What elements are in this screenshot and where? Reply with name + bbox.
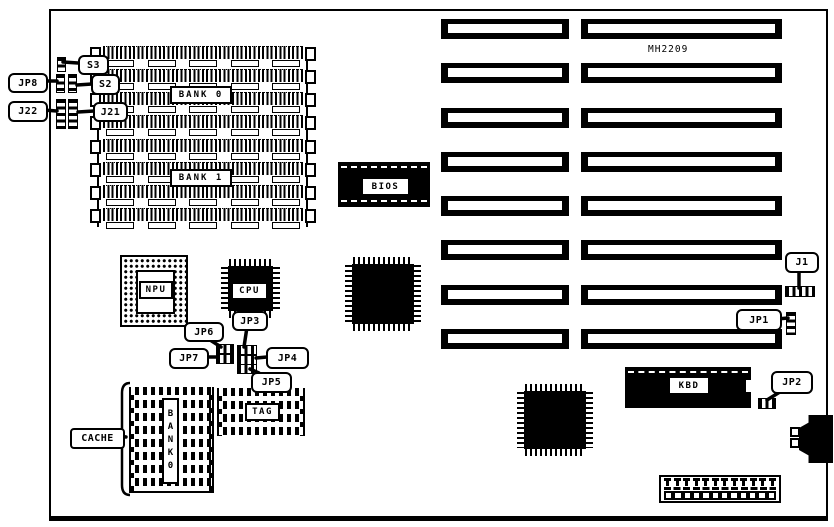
simm-body-box xyxy=(148,153,176,160)
bank0-label: BANK 0 xyxy=(170,86,232,104)
simm-body-box xyxy=(231,83,259,90)
isa-slot xyxy=(441,63,569,83)
bios-label: BIOS xyxy=(361,177,410,196)
simm-latch-right xyxy=(305,140,316,154)
power-pin xyxy=(693,478,700,486)
simm-pin-comb xyxy=(103,208,303,221)
simm-body-box xyxy=(106,60,134,67)
power-pin-row xyxy=(664,478,776,486)
callout-jp8: JP8 xyxy=(8,73,48,93)
simm-body-box xyxy=(148,129,176,136)
isa-slot-column-right xyxy=(581,19,782,349)
simm-bank-area xyxy=(90,46,316,229)
power-pin xyxy=(731,478,738,486)
simm-socket-row xyxy=(90,139,316,160)
simm-body-box xyxy=(189,222,217,229)
bank1-label: BANK 1 xyxy=(170,169,232,187)
power-pin xyxy=(712,478,719,486)
simm-body-row xyxy=(106,129,300,136)
simm-latch-left xyxy=(90,163,101,177)
callout-jp1: JP1 xyxy=(736,309,782,331)
isa-slot xyxy=(581,240,782,260)
simm-body-box xyxy=(272,153,300,160)
motherboard-diagram: BANK 0 BANK 1 MH2209 BIOS NPU CPU xyxy=(0,0,834,527)
callout-jp3: JP3 xyxy=(232,311,268,331)
power-socket xyxy=(720,491,729,500)
simm-body-row xyxy=(106,199,300,206)
power-pin xyxy=(683,478,690,486)
jumper-j22-b xyxy=(68,99,78,129)
power-socket xyxy=(673,491,682,500)
simm-body-box xyxy=(272,129,300,136)
isa-slot xyxy=(581,19,782,39)
isa-slot xyxy=(441,19,569,39)
power-pin xyxy=(702,478,709,486)
simm-socket-row xyxy=(90,208,316,229)
isa-slot xyxy=(441,152,569,172)
callout-s2: S2 xyxy=(91,74,120,95)
simm-body-box xyxy=(231,60,259,67)
simm-body-row xyxy=(106,60,300,67)
power-socket xyxy=(701,491,710,500)
isa-slot xyxy=(441,285,569,305)
jumper-j22-a xyxy=(56,99,66,129)
power-pin xyxy=(664,478,671,486)
npu-label: NPU xyxy=(139,281,173,299)
simm-body-box xyxy=(189,153,217,160)
callout-jp2: JP2 xyxy=(771,371,813,394)
callout-jp4: JP4 xyxy=(266,347,309,369)
isa-slot-column-left xyxy=(441,19,569,349)
cache-bank0-label: BANK0 xyxy=(162,398,179,484)
simm-body-box xyxy=(148,222,176,229)
model-text: MH2209 xyxy=(648,44,688,55)
power-key-bar xyxy=(664,487,776,490)
simm-latch-right xyxy=(305,163,316,177)
power-pin xyxy=(769,478,776,486)
simm-latch-left xyxy=(90,140,101,154)
isa-slot xyxy=(441,240,569,260)
simm-pin-comb xyxy=(103,69,303,82)
callout-cache: CACHE xyxy=(70,428,125,449)
simm-body-box xyxy=(272,60,300,67)
simm-body-box xyxy=(189,60,217,67)
power-socket xyxy=(757,491,766,500)
simm-body-box xyxy=(189,106,217,113)
simm-body-box xyxy=(189,199,217,206)
callout-jp6: JP6 xyxy=(184,322,224,342)
tag-label: TAG xyxy=(245,403,280,421)
cpu-label: CPU xyxy=(231,282,268,300)
simm-body-box xyxy=(231,106,259,113)
callout-jp7: JP7 xyxy=(169,348,209,369)
simm-latch-right xyxy=(305,47,316,61)
power-socket xyxy=(683,491,692,500)
callout-j1: J1 xyxy=(785,252,819,273)
jumper-jp3 xyxy=(237,345,257,355)
callout-s3: S3 xyxy=(78,55,109,75)
simm-body-box xyxy=(231,222,259,229)
callout-j21: J21 xyxy=(93,102,128,122)
power-pin xyxy=(750,478,757,486)
simm-socket-row xyxy=(90,46,316,67)
simm-body-box xyxy=(231,199,259,206)
power-pin xyxy=(759,478,766,486)
simm-latch-right xyxy=(305,186,316,200)
power-socket xyxy=(664,491,673,500)
power-pin xyxy=(740,478,747,486)
simm-latch-left xyxy=(90,209,101,223)
jumper-s3 xyxy=(57,57,66,72)
isa-slot xyxy=(581,285,782,305)
simm-body-row xyxy=(106,222,300,229)
power-pin xyxy=(721,478,728,486)
simm-body-box xyxy=(148,199,176,206)
power-socket xyxy=(767,491,776,500)
power-socket xyxy=(729,491,738,500)
simm-latch-right xyxy=(305,70,316,84)
simm-body-box xyxy=(231,176,259,183)
simm-pin-comb xyxy=(103,139,303,152)
isa-slot xyxy=(581,63,782,83)
power-socket xyxy=(692,491,701,500)
simm-body-box xyxy=(231,153,259,160)
power-socket xyxy=(748,491,757,500)
simm-pin-comb xyxy=(103,115,303,128)
isa-slot xyxy=(581,329,782,349)
jumper-jp2 xyxy=(758,398,776,409)
power-socket xyxy=(739,491,748,500)
isa-slot xyxy=(581,196,782,216)
simm-latch-right xyxy=(305,209,316,223)
jumper-jp8-b xyxy=(68,74,77,93)
din-tab-upper xyxy=(790,427,800,437)
power-pin xyxy=(674,478,681,486)
io-qfp-chip xyxy=(517,384,593,456)
jumper-jp6 xyxy=(216,344,234,354)
isa-slot xyxy=(441,108,569,128)
power-socket xyxy=(711,491,720,500)
simm-body-box xyxy=(272,176,300,183)
simm-body-box xyxy=(106,199,134,206)
jumper-jp8-a xyxy=(56,74,65,93)
jumper-jp1 xyxy=(786,312,796,335)
simm-body-box xyxy=(272,83,300,90)
callout-j22: J22 xyxy=(8,101,48,122)
isa-slot xyxy=(581,108,782,128)
power-socket-row xyxy=(664,491,776,500)
jumper-j1 xyxy=(785,286,815,297)
simm-body-box xyxy=(106,176,134,183)
simm-pin-comb xyxy=(103,46,303,59)
simm-latch-right xyxy=(305,116,316,130)
sram-socket-row xyxy=(217,427,305,436)
simm-latch-left xyxy=(90,186,101,200)
simm-body-box xyxy=(106,153,134,160)
simm-body-box xyxy=(189,129,217,136)
isa-slot xyxy=(441,329,569,349)
simm-body-row xyxy=(106,153,300,160)
chipset-qfp-chip xyxy=(345,257,421,331)
simm-body-row xyxy=(106,106,300,113)
simm-body-box xyxy=(272,106,300,113)
simm-body-box xyxy=(106,222,134,229)
simm-body-box xyxy=(231,129,259,136)
simm-body-box xyxy=(106,129,134,136)
simm-body-box xyxy=(272,222,300,229)
simm-body-box xyxy=(148,60,176,67)
simm-socket-row xyxy=(90,185,316,206)
callout-jp5: JP5 xyxy=(251,372,292,393)
simm-body-box xyxy=(148,106,176,113)
kbd-label: KBD xyxy=(668,376,710,395)
power-connector xyxy=(659,475,781,503)
din-tab-lower xyxy=(790,438,800,448)
isa-slot xyxy=(441,196,569,216)
simm-latch-right xyxy=(305,93,316,107)
isa-slot xyxy=(581,152,782,172)
jumper-jp7 xyxy=(216,354,234,364)
simm-body-box xyxy=(272,199,300,206)
